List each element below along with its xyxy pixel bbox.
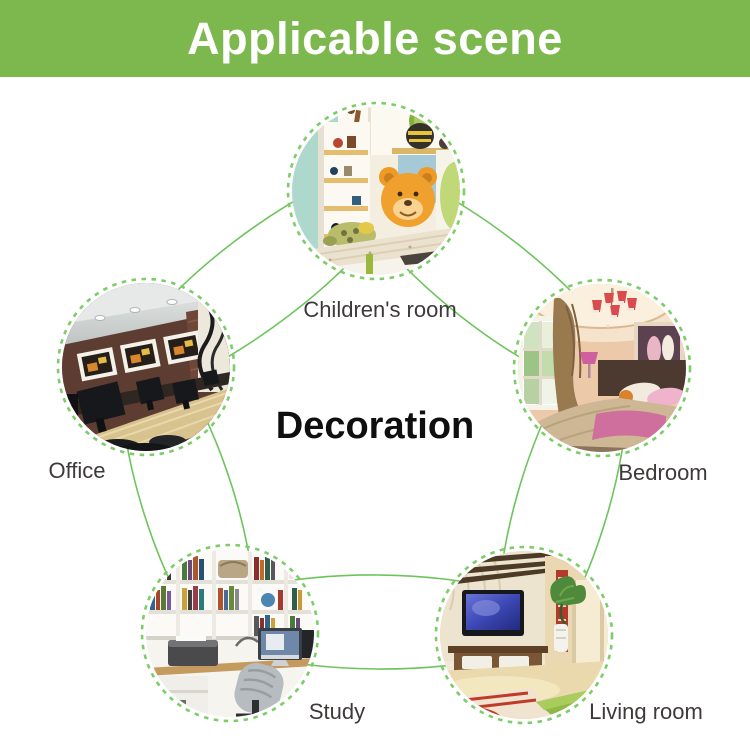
label-study: Study: [309, 698, 365, 726]
scene-diagram: [0, 0, 750, 750]
label-bedroom: Bedroom: [618, 459, 707, 487]
center-title: Decoration: [276, 405, 474, 448]
applicable-scene-infographic: Applicable scene: [0, 0, 750, 750]
label-office: Office: [48, 457, 105, 485]
living-room-photo: [436, 547, 612, 724]
label-living-room: Living room: [589, 698, 703, 726]
office-photo: [56, 279, 234, 459]
bedroom-photo: [492, 258, 712, 456]
children-room-photo: [288, 103, 470, 279]
study-photo: [142, 545, 318, 721]
label-children-room: Children's room: [303, 296, 456, 324]
